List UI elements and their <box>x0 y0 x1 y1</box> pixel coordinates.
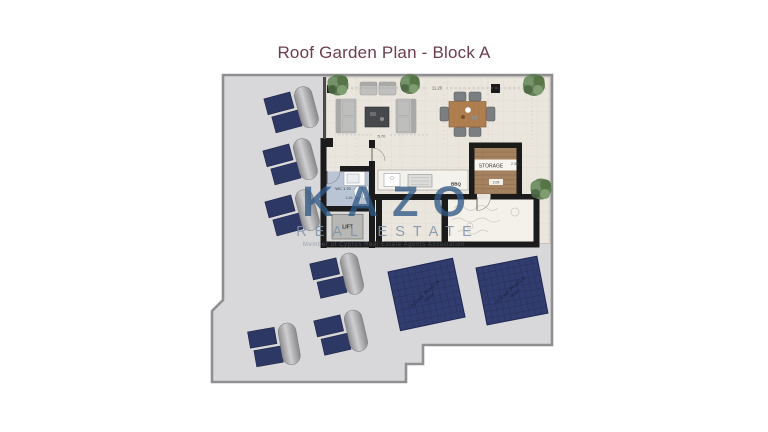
sofa <box>336 99 356 133</box>
dim-living-width: 5.70 <box>378 134 387 139</box>
wc-toilet <box>354 186 369 198</box>
tree-icon <box>400 74 420 94</box>
coffee-table <box>365 107 389 127</box>
dining-chair <box>469 128 481 137</box>
roof-garden-plan-page: Roof Garden Plan - Block A <box>0 0 768 432</box>
pebble-garden <box>448 200 534 242</box>
tree-icon <box>328 75 349 96</box>
tree-icon <box>531 179 552 200</box>
solar-panel-array: SOLAR PANELS 75x154 <box>476 256 548 325</box>
bbq-label: BBQ <box>451 182 461 187</box>
sofa <box>396 99 416 133</box>
storage-dim-depth: 2.09 <box>493 181 500 185</box>
dining-chair <box>440 107 449 121</box>
dim-top-width: 11.20 <box>432 86 443 91</box>
dining-chair <box>469 92 481 101</box>
storage-dim-width: 2.30 <box>511 162 518 166</box>
dining-chair <box>454 92 466 101</box>
wc-label: WC 1.70 <box>335 186 351 191</box>
solar-panel-array: SOLAR PANELS 75x154 <box>388 258 465 330</box>
tree-icon <box>523 74 545 96</box>
storage-label: STORAGE <box>479 164 504 170</box>
bbq-counter <box>378 170 468 190</box>
floor-plan: 11.20 5.70 WC 1.70 1.65 LIFT BBQ STORAGE… <box>0 0 768 432</box>
bbq-sink <box>384 174 400 187</box>
room-storage <box>472 148 519 194</box>
dining-chair <box>454 128 466 137</box>
wc-dim: 1.65 <box>346 196 353 200</box>
column <box>491 84 500 93</box>
lift-label: LIFT <box>342 225 353 231</box>
dining-table <box>449 102 486 128</box>
dining-chair <box>487 107 496 121</box>
